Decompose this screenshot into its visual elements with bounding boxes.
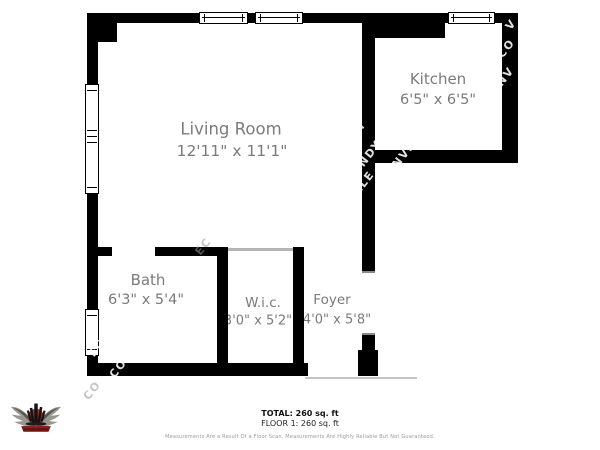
living-room-window-top-left <box>199 12 248 24</box>
window-rail <box>87 142 97 143</box>
disclaimer-text: Measurements Are a Result Of a Floor Sca… <box>0 434 600 440</box>
room-dimensions-kitchen: 6'5" x 6'5" <box>400 92 476 108</box>
window-rail <box>87 136 97 137</box>
bath-top-wall-stub <box>87 247 112 256</box>
window-mullion <box>204 14 205 22</box>
living-room-window-top-right <box>255 12 303 24</box>
room-label-living-room: Living Room <box>180 120 281 139</box>
window-rail <box>87 130 97 131</box>
window-rail <box>87 315 97 316</box>
wic-door-opening-header <box>228 248 293 251</box>
watermark-fragment: CO <box>81 378 104 402</box>
exterior-wall-left-upper <box>87 13 98 85</box>
foyer-door-jamb-bottom <box>362 333 375 335</box>
room-dimensions-wic: 3'0" x 5'2" <box>224 314 292 329</box>
window-mullion <box>260 14 261 22</box>
bath-wic-divider-wall <box>217 247 228 363</box>
room-label-bath: Bath <box>131 271 166 289</box>
room-label-wic: W.i.c. <box>245 295 281 311</box>
window-rail <box>87 90 97 91</box>
room-label-kitchen: Kitchen <box>410 70 466 88</box>
agency-logo <box>10 398 62 446</box>
floor-plan-page: Living Room 12'11" x 11'1" Kitchen 6'5" … <box>0 0 600 450</box>
window-mullion <box>453 14 454 22</box>
total-area-text: TOTAL: 260 sq. ft <box>0 409 600 418</box>
entry-corner-block <box>358 350 378 376</box>
window-rail <box>87 187 97 188</box>
kitchen-window <box>448 12 495 24</box>
floor-area-text: FLOOR 1: 260 sq. ft <box>0 419 600 428</box>
entry-threshold-line <box>305 377 417 379</box>
kitchen-bottom-wall <box>362 150 518 163</box>
living-room-window-left-tall <box>85 84 99 194</box>
window-mullion <box>297 14 298 22</box>
room-dimensions-foyer: 4'0" x 5'8" <box>303 313 371 328</box>
window-mullion <box>489 14 490 22</box>
watermark-fragment: CO <box>107 356 130 380</box>
wic-foyer-divider-wall <box>293 247 304 363</box>
room-dimensions-bath: 6'3" x 5'4" <box>108 292 184 308</box>
winged-skyline-emblem-icon <box>10 398 62 442</box>
window-mullion <box>242 14 243 22</box>
room-label-foyer: Foyer <box>313 292 350 308</box>
top-window-center-mullion <box>248 13 255 23</box>
watermark-fragment: VIE <box>382 165 407 192</box>
foyer-door-jamb-top <box>362 271 375 273</box>
room-dimensions-living-room: 12'11" x 11'1" <box>177 142 288 160</box>
